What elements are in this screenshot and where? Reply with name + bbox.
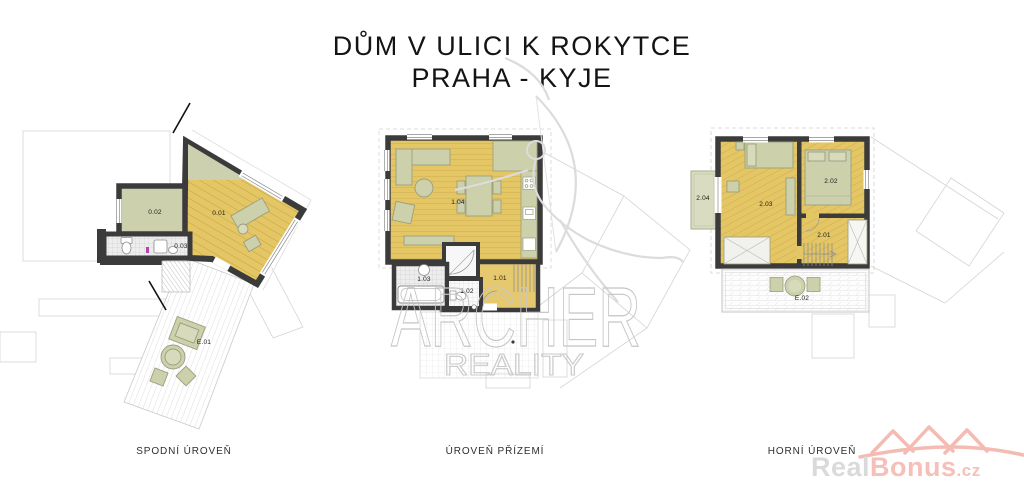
room-label-0-01: 0.01 bbox=[212, 210, 226, 217]
wall-block bbox=[100, 256, 164, 265]
logo-pink-text: Bonus bbox=[870, 452, 957, 482]
room-label-1-04: 1.04 bbox=[451, 199, 465, 206]
room-label-e02: E.02 bbox=[795, 295, 809, 302]
room-label-2-03: 2.03 bbox=[759, 201, 773, 208]
kitchen-appliances bbox=[523, 177, 536, 251]
door-gap bbox=[806, 213, 819, 219]
plan-upper-level: 2.03 2.02 2.04 2.01 E.02 bbox=[691, 128, 1004, 358]
room-label-2-04: 2.04 bbox=[696, 195, 710, 202]
lower-stairs bbox=[162, 261, 190, 292]
watermark-subtitle-text: REALITY bbox=[444, 347, 584, 382]
room-label-e01: E.01 bbox=[197, 339, 211, 346]
door-gap bbox=[797, 246, 803, 259]
caption-ground-level: ÚROVEŇ PŘÍZEMÍ bbox=[446, 446, 545, 457]
section-line bbox=[173, 103, 190, 133]
terrace-e02 bbox=[722, 269, 869, 312]
realbonus-logo: RealBonus.cz bbox=[811, 452, 981, 483]
logo-gray-text: Real bbox=[811, 452, 870, 482]
floor-plan-sheet: DŮM V ULICI K ROKYTCE PRAHA - KYJE bbox=[0, 0, 1024, 490]
room-label-0-03: 0.03 bbox=[174, 243, 188, 250]
floor-plans-drawing: 0.01 0.02 0.03 E.01 bbox=[0, 0, 1024, 490]
room-label-2-02: 2.02 bbox=[824, 178, 838, 185]
caption-lower-level: SPODNÍ ÚROVEŇ bbox=[136, 446, 232, 457]
room-0-02-window bbox=[115, 199, 122, 223]
room-label-2-01: 2.01 bbox=[817, 232, 831, 239]
logo-tld-text: .cz bbox=[957, 461, 981, 480]
room-label-0-02: 0.02 bbox=[148, 209, 162, 216]
plan-lower-level: 0.01 0.02 0.03 E.01 bbox=[0, 103, 311, 429]
